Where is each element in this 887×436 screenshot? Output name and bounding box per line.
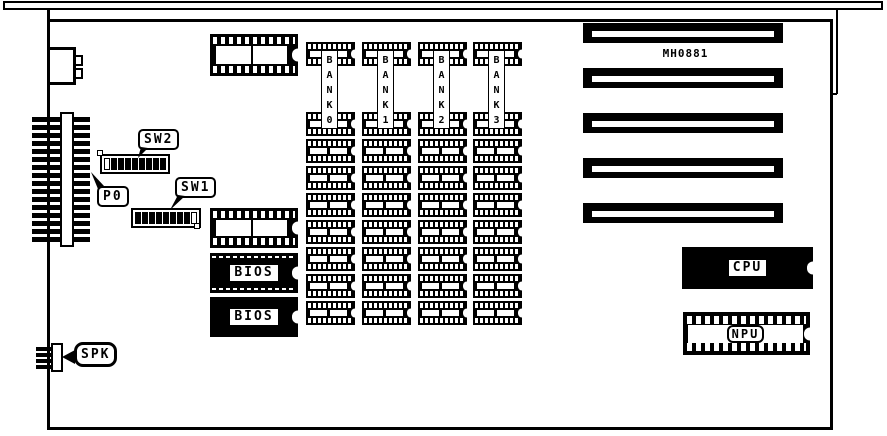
- socket-pin-row: [308, 44, 353, 49]
- chip-half: [330, 148, 347, 154]
- memory-socket: [362, 247, 411, 271]
- chip-notch: [463, 201, 467, 210]
- chip-half: [442, 202, 459, 208]
- chip-half: [366, 283, 383, 289]
- memory-bank-column: BANK3: [473, 42, 522, 326]
- socket-chip-body: [422, 283, 459, 289]
- bank-label: BANK3: [488, 50, 505, 129]
- socket-pin-row: [364, 237, 409, 242]
- chip-notch: [518, 255, 522, 264]
- bank-label: BANK0: [321, 50, 338, 129]
- chip-half: [477, 148, 494, 154]
- socket-pin-row: [475, 156, 520, 161]
- socket-pin-row: [308, 183, 353, 188]
- socket-pin-row: [364, 44, 409, 49]
- chip-notch: [351, 147, 355, 156]
- memory-socket: [306, 247, 355, 271]
- chip-notch: [518, 147, 522, 156]
- socket-pin-row: [420, 210, 465, 215]
- chip-half: [477, 229, 494, 235]
- socket-pin-row: [475, 141, 520, 146]
- chip-notch: [518, 201, 522, 210]
- chip-half: [366, 256, 383, 262]
- chip-notch: [518, 228, 522, 237]
- chip-half: [422, 310, 439, 316]
- chip-notch: [518, 282, 522, 291]
- memory-socket: [473, 193, 522, 217]
- chip-notch: [351, 50, 355, 59]
- chip-half: [330, 202, 347, 208]
- chip-notch: [463, 282, 467, 291]
- memory-socket: [473, 220, 522, 244]
- chip-half: [366, 310, 383, 316]
- chip-half: [442, 283, 459, 289]
- chip-notch: [807, 262, 813, 275]
- chip-half: [422, 148, 439, 154]
- socket-chip-body: [366, 283, 403, 289]
- memory-socket: [418, 301, 467, 325]
- chip-half: [442, 256, 459, 262]
- socket-chip-body: [366, 175, 403, 181]
- memory-socket: [306, 193, 355, 217]
- chip-half: [422, 175, 439, 181]
- chip-half: [330, 310, 347, 316]
- socket-pin-row: [420, 264, 465, 269]
- chip-notch: [518, 50, 522, 59]
- cpu-chip: CPU: [682, 247, 813, 289]
- socket-chip-body: [477, 229, 514, 235]
- slot-contact-strip: [592, 121, 774, 127]
- chip-notch: [407, 228, 411, 237]
- socket-chip-body: [310, 148, 347, 154]
- socket-pin-row: [475, 264, 520, 269]
- memory-socket: [306, 220, 355, 244]
- socket-chip-body: [310, 283, 347, 289]
- memory-socket: [306, 139, 355, 163]
- socket-pin-row: [364, 168, 409, 173]
- chip-half: [310, 283, 327, 289]
- socket-chip-body: [422, 256, 459, 262]
- socket-chip-body: [366, 310, 403, 316]
- socket-chip-body: [422, 148, 459, 154]
- chip-half: [366, 202, 383, 208]
- socket-pin-row: [420, 141, 465, 146]
- chip-half: [477, 202, 494, 208]
- socket-chip-body: [366, 256, 403, 262]
- socket-pin-row: [308, 129, 353, 134]
- socket-pin-row: [475, 44, 520, 49]
- chip-notch: [351, 309, 355, 318]
- expansion-slot: [583, 23, 783, 43]
- chip-notch: [463, 309, 467, 318]
- socket-pin-row: [364, 303, 409, 308]
- socket-pin-row: [475, 276, 520, 281]
- socket-pin-row: [364, 183, 409, 188]
- spk-connector-body: [51, 343, 63, 372]
- memory-bank-column: BANK0: [306, 42, 355, 326]
- chip-notch: [351, 174, 355, 183]
- chip-notch: [351, 282, 355, 291]
- chip-half: [386, 202, 403, 208]
- chip-notch: [804, 327, 810, 340]
- chip-notch: [463, 120, 467, 129]
- chip-notch: [407, 255, 411, 264]
- chip-half: [442, 229, 459, 235]
- socket-pin-row: [420, 291, 465, 296]
- chip-half: [310, 229, 327, 235]
- memory-socket: [306, 301, 355, 325]
- chip-half: [477, 310, 494, 316]
- socket-chip-body: [422, 175, 459, 181]
- chip-notch: [407, 174, 411, 183]
- chip-half: [477, 283, 494, 289]
- chip-notch: [407, 50, 411, 59]
- chip-notch: [463, 174, 467, 183]
- expansion-slot: [583, 68, 783, 88]
- socket-pin-row: [420, 183, 465, 188]
- socket-chip-body: [310, 256, 347, 262]
- chip-half: [422, 283, 439, 289]
- socket-pin-row: [420, 222, 465, 227]
- chip-half: [310, 202, 327, 208]
- socket-pin-row: [420, 129, 465, 134]
- chip-half: [422, 202, 439, 208]
- socket-pin-row: [308, 210, 353, 215]
- bank-label: BANK1: [377, 50, 394, 129]
- memory-socket: [362, 274, 411, 298]
- socket-pin-row: [420, 303, 465, 308]
- chip-half: [386, 256, 403, 262]
- socket-pin-row: [475, 168, 520, 173]
- memory-socket: [306, 274, 355, 298]
- socket-chip-body: [366, 202, 403, 208]
- socket-chip-body: [422, 229, 459, 235]
- chip-half: [422, 229, 439, 235]
- memory-socket: [473, 166, 522, 190]
- memory-bank-column: BANK2: [418, 42, 467, 326]
- socket-pin-row: [308, 141, 353, 146]
- npu-label: NPU: [727, 325, 765, 343]
- socket-pin-row: [308, 168, 353, 173]
- socket-pin-row: [475, 183, 520, 188]
- memory-socket: [418, 139, 467, 163]
- slot-contact-strip: [592, 211, 774, 217]
- chip-notch: [463, 147, 467, 156]
- memory-bank-column: BANK1: [362, 42, 411, 326]
- chip-notch: [407, 201, 411, 210]
- expansion-slot: [583, 113, 783, 133]
- chip-half: [422, 256, 439, 262]
- chip-half: [330, 283, 347, 289]
- cpu-label: CPU: [729, 260, 766, 276]
- slot-contact-strip: [592, 166, 774, 172]
- motherboard-diagram: BIOS BIOS SW2 SW1 P0 SPK BANK0BANK1BANK2…: [0, 0, 887, 436]
- socket-pin-row: [308, 222, 353, 227]
- chip-notch: [518, 120, 522, 129]
- chip-half: [497, 310, 514, 316]
- chip-half: [310, 256, 327, 262]
- expansion-slot: [583, 203, 783, 223]
- chip-notch: [463, 50, 467, 59]
- memory-socket: [473, 301, 522, 325]
- socket-pin-row: [475, 222, 520, 227]
- chip-half: [497, 283, 514, 289]
- memory-socket: [362, 139, 411, 163]
- chip-half: [497, 229, 514, 235]
- chip-notch: [407, 120, 411, 129]
- memory-socket: [362, 166, 411, 190]
- socket-pin-row: [687, 316, 806, 324]
- chip-notch: [407, 309, 411, 318]
- chip-half: [477, 256, 494, 262]
- chip-half: [497, 202, 514, 208]
- socket-pin-row: [308, 237, 353, 242]
- chip-half: [386, 229, 403, 235]
- socket-pin-row: [308, 264, 353, 269]
- socket-pin-row: [475, 195, 520, 200]
- chip-notch: [518, 174, 522, 183]
- socket-pin-row: [308, 249, 353, 254]
- chip-half: [386, 148, 403, 154]
- chip-half: [497, 175, 514, 181]
- socket-pin-row: [475, 303, 520, 308]
- socket-chip-body: [477, 310, 514, 316]
- chip-notch: [351, 120, 355, 129]
- socket-pin-row: [364, 210, 409, 215]
- chip-half: [442, 148, 459, 154]
- chip-half: [477, 175, 494, 181]
- socket-chip-body: [366, 148, 403, 154]
- socket-pin-row: [420, 44, 465, 49]
- socket-pin-row: [364, 156, 409, 161]
- memory-socket: [418, 247, 467, 271]
- socket-chip-body: [310, 175, 347, 181]
- socket-pin-row: [308, 318, 353, 323]
- memory-socket: [418, 274, 467, 298]
- chip-half: [310, 148, 327, 154]
- chip-notch: [463, 255, 467, 264]
- socket-pin-row: [475, 210, 520, 215]
- chip-half: [386, 283, 403, 289]
- socket-pin-row: [420, 195, 465, 200]
- socket-chip-body: [477, 202, 514, 208]
- socket-pin-row: [364, 222, 409, 227]
- socket-pin-row: [420, 237, 465, 242]
- callout-spk: SPK: [74, 342, 117, 367]
- chip-half: [386, 175, 403, 181]
- memory-socket: [418, 220, 467, 244]
- socket-pin-row: [308, 156, 353, 161]
- socket-pin-row: [475, 237, 520, 242]
- socket-pin-row: [475, 249, 520, 254]
- socket-chip-body: [310, 202, 347, 208]
- slot-contact-strip: [592, 31, 774, 37]
- memory-socket: [473, 139, 522, 163]
- socket-chip-body: [477, 148, 514, 154]
- chip-notch: [351, 228, 355, 237]
- rear-panel-rail: [3, 1, 883, 10]
- socket-pin-row: [687, 343, 806, 351]
- chip-half: [497, 148, 514, 154]
- memory-socket: [362, 301, 411, 325]
- chip-half: [386, 310, 403, 316]
- socket-pin-row: [364, 264, 409, 269]
- socket-chip-body: [366, 229, 403, 235]
- chip-half: [330, 229, 347, 235]
- socket-pin-row: [364, 276, 409, 281]
- socket-pin-row: [420, 318, 465, 323]
- npu-socket: NPU: [683, 312, 810, 355]
- socket-chip-body: [310, 310, 347, 316]
- chip-notch: [518, 309, 522, 318]
- socket-pin-row: [475, 318, 520, 323]
- socket-pin-row: [475, 129, 520, 134]
- chip-notch: [407, 282, 411, 291]
- chip-half: [442, 175, 459, 181]
- chip-notch: [351, 201, 355, 210]
- socket-chip-body: [477, 175, 514, 181]
- socket-pin-row: [364, 129, 409, 134]
- memory-socket: [306, 166, 355, 190]
- socket-chip-body: [310, 229, 347, 235]
- socket-pin-row: [420, 168, 465, 173]
- socket-chip-body: [477, 256, 514, 262]
- socket-chip-body: NPU: [688, 325, 803, 343]
- socket-chip-body: [422, 310, 459, 316]
- chip-notch: [407, 147, 411, 156]
- socket-pin-row: [420, 156, 465, 161]
- socket-pin-row: [308, 195, 353, 200]
- chip-half: [366, 148, 383, 154]
- socket-pin-row: [364, 318, 409, 323]
- socket-pin-row: [420, 276, 465, 281]
- socket-pin-row: [364, 249, 409, 254]
- socket-chip-body: [477, 283, 514, 289]
- memory-socket: [473, 274, 522, 298]
- socket-pin-row: [364, 291, 409, 296]
- memory-socket: [362, 220, 411, 244]
- chip-notch: [463, 228, 467, 237]
- chip-half: [366, 229, 383, 235]
- expansion-slot: [583, 158, 783, 178]
- chip-half: [330, 175, 347, 181]
- chip-half: [366, 175, 383, 181]
- memory-socket: [418, 193, 467, 217]
- socket-pin-row: [364, 141, 409, 146]
- slot-contact-strip: [592, 76, 774, 82]
- socket-pin-row: [308, 276, 353, 281]
- socket-pin-row: [475, 291, 520, 296]
- socket-pin-row: [364, 195, 409, 200]
- chip-half: [330, 256, 347, 262]
- memory-socket: [473, 247, 522, 271]
- socket-chip-body: [422, 202, 459, 208]
- chip-half: [310, 310, 327, 316]
- memory-socket: [362, 193, 411, 217]
- bank-label: BANK2: [433, 50, 450, 129]
- chip-half: [310, 175, 327, 181]
- chip-half: [497, 256, 514, 262]
- socket-pin-row: [308, 303, 353, 308]
- memory-socket: [418, 166, 467, 190]
- socket-pin-row: [420, 249, 465, 254]
- chip-half: [442, 310, 459, 316]
- part-number-label: MH0881: [648, 47, 723, 60]
- chip-notch: [351, 255, 355, 264]
- socket-pin-row: [308, 291, 353, 296]
